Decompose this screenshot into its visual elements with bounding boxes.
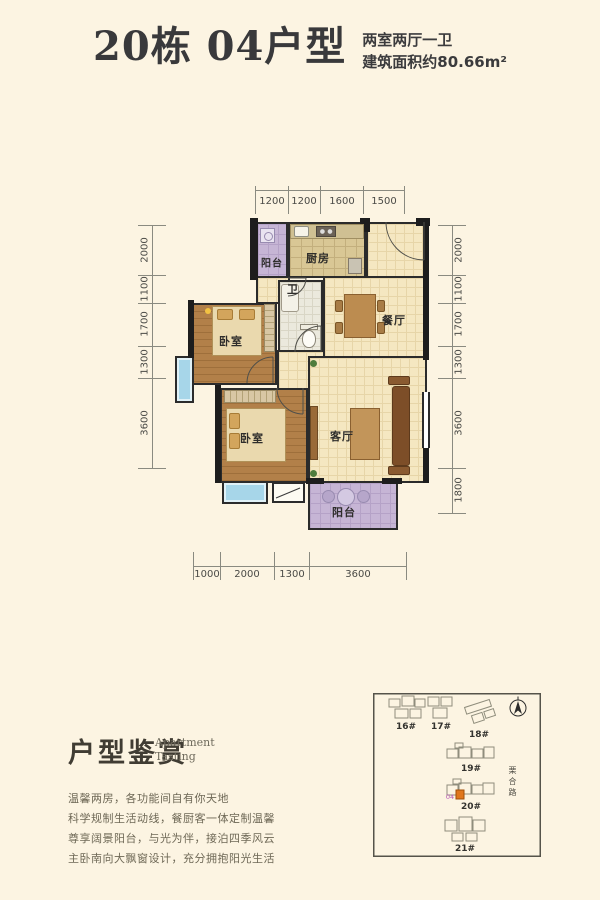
dim-tick	[363, 186, 364, 214]
floor-plan: 阳台 厨房 卫 餐厅 卧室 卧室 客厅 阳台 1200 1200 1600 15…	[0, 0, 600, 620]
dim-label: 3600	[140, 410, 151, 435]
wardrobe-upper	[264, 304, 275, 352]
building-label-18: 18#	[469, 730, 489, 740]
balcony-chair	[322, 490, 335, 503]
north-arrow	[514, 701, 522, 714]
tv-cabinet	[310, 406, 318, 460]
dim-label: 1600	[329, 196, 354, 207]
description-line: 主卧南向大飘窗设计，充分拥抱阳光生活	[68, 849, 275, 869]
kitchen-sink	[294, 226, 309, 237]
coffee-table	[350, 408, 380, 460]
dim-tick	[438, 468, 466, 469]
highlighted-unit	[456, 790, 464, 799]
dim-label: 2000	[234, 569, 259, 580]
building-17	[428, 697, 452, 718]
dim-label: 1200	[291, 196, 316, 207]
dining-chair	[335, 322, 343, 334]
fridge	[348, 258, 362, 274]
dim-line	[255, 190, 405, 191]
pillow	[217, 309, 233, 320]
label-bedroom-upper: 卧室	[219, 333, 243, 349]
dim-label: 1000	[194, 569, 219, 580]
dim-tick	[309, 552, 310, 580]
wall-segment	[382, 478, 402, 484]
dim-label: 1300	[140, 349, 151, 374]
dim-tick	[138, 378, 166, 379]
dining-table	[344, 294, 376, 338]
dim-tick	[438, 378, 466, 379]
building-label-16: 16#	[396, 722, 416, 732]
dining-chair	[335, 300, 343, 312]
dim-label: 1100	[454, 276, 465, 301]
compass-icon	[510, 697, 526, 717]
dim-tick	[438, 346, 466, 347]
dim-line	[193, 566, 406, 567]
flue-shaft	[272, 482, 305, 503]
dim-label: 2000	[454, 237, 465, 262]
page: { "header": { "title": "20栋 04户型", "spec…	[0, 0, 600, 900]
dim-tick	[138, 225, 166, 226]
building-label-21: 21#	[455, 844, 475, 854]
label-living: 客厅	[330, 428, 354, 444]
balcony-chair	[357, 490, 370, 503]
dim-label: 1100	[140, 276, 151, 301]
wall-segment	[306, 478, 324, 484]
section-description: 温馨两房，各功能间自有你天地 科学规制生活动线，餐厨客一体定制温馨 尊享阔景阳台…	[68, 789, 275, 869]
dining-chair	[377, 300, 385, 312]
pillow	[239, 309, 255, 320]
dim-label: 1700	[140, 311, 151, 336]
dim-tick	[438, 513, 466, 514]
label-balcony-bottom: 阳台	[332, 504, 356, 520]
wardrobe-lower	[224, 390, 276, 403]
wall-segment	[188, 300, 194, 358]
dim-label: 3600	[454, 410, 465, 435]
wall-segment	[423, 224, 429, 360]
dim-tick	[255, 186, 256, 214]
lamp	[205, 308, 211, 314]
building-label-20: 20#	[461, 802, 481, 812]
dim-label: 2000	[140, 237, 151, 262]
road-label: 栗合路	[507, 766, 518, 799]
section-subtitle-en: Apartment Tasting	[155, 736, 215, 764]
wall-segment	[215, 385, 221, 483]
dim-label: 1300	[279, 569, 304, 580]
label-dining: 餐厅	[382, 312, 406, 328]
pillow	[229, 433, 240, 449]
building-label-19: 19#	[461, 764, 481, 774]
dim-label: 1700	[454, 311, 465, 336]
dim-tick	[138, 346, 166, 347]
building-16	[389, 696, 425, 718]
dim-tick	[438, 303, 466, 304]
unit-number-label: 04	[446, 793, 454, 801]
description-line: 温馨两房，各功能间自有你天地	[68, 789, 275, 809]
label-bedroom-lower: 卧室	[240, 430, 264, 446]
washing-machine	[260, 228, 275, 243]
wall-segment	[250, 218, 258, 280]
section-subtitle-en-line2: Tasting	[155, 750, 215, 764]
dim-tick	[138, 468, 166, 469]
dim-tick	[404, 186, 405, 214]
building-21	[445, 817, 485, 841]
bay-window-left	[175, 356, 194, 403]
dim-tick	[288, 186, 289, 214]
dim-label: 1500	[371, 196, 396, 207]
dim-label: 1200	[259, 196, 284, 207]
label-kitchen: 厨房	[306, 250, 330, 266]
sofa-side-table	[388, 466, 410, 475]
sofa-side-table	[388, 376, 410, 385]
label-bath: 卫	[287, 281, 299, 297]
building-18	[465, 699, 496, 724]
label-balcony-top: 阳台	[261, 255, 283, 270]
dim-label: 3600	[345, 569, 370, 580]
dim-label: 1800	[454, 477, 465, 502]
plant	[310, 470, 317, 477]
room-entry	[366, 222, 427, 278]
dim-tick	[220, 552, 221, 580]
kitchen-stove	[316, 226, 336, 237]
building-19	[447, 743, 494, 758]
description-line: 科学规制生活动线，餐厨客一体定制温馨	[68, 809, 275, 829]
dim-tick	[138, 303, 166, 304]
bay-window-bottom	[222, 481, 268, 504]
pillow	[229, 413, 240, 429]
dim-tick	[438, 225, 466, 226]
plant	[310, 360, 317, 367]
dim-tick	[274, 552, 275, 580]
dim-tick	[406, 552, 407, 580]
wall-segment	[423, 448, 429, 483]
toilet	[302, 330, 316, 348]
sofa	[392, 386, 410, 466]
window-right	[422, 392, 430, 448]
dim-tick	[320, 186, 321, 214]
dim-label: 1300	[454, 349, 465, 374]
description-line: 尊享阔景阳台，与光为伴，接泊四季风云	[68, 829, 275, 849]
building-label-17: 17#	[431, 722, 451, 732]
section-subtitle-en-line1: Apartment	[155, 736, 215, 750]
